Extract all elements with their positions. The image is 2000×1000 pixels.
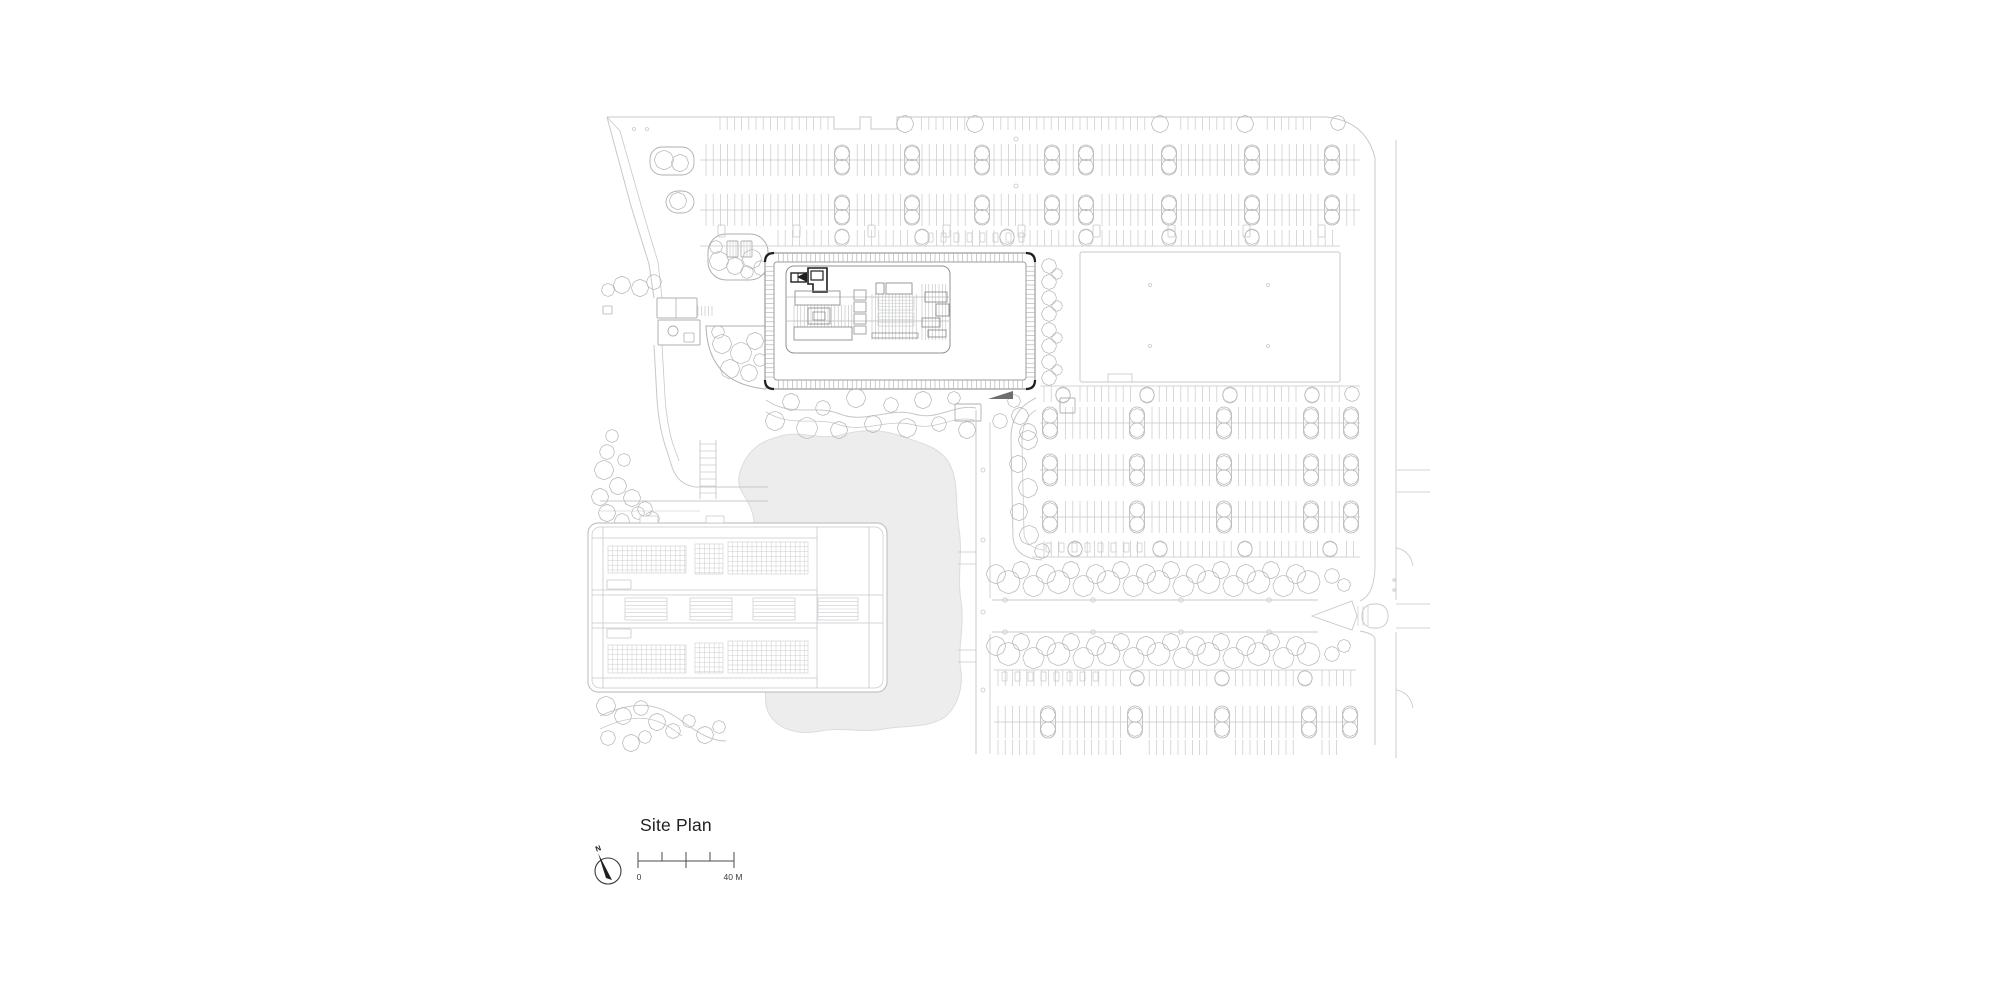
north-arrow-circle — [595, 858, 621, 884]
scale-label-zero: 0 — [637, 872, 642, 882]
site-plan-drawing: Site Plan N 0 40 M — [0, 0, 2000, 1000]
site-plan-sheet: Site Plan N 0 40 M — [0, 0, 2000, 1000]
plan-layers — [588, 116, 1430, 758]
scale-bar: 0 40 M — [637, 852, 743, 882]
north-label: N — [594, 843, 602, 853]
scale-label-max: 40 M — [724, 872, 743, 882]
north-needle-icon — [598, 853, 612, 880]
drawing-title: Site Plan — [640, 815, 712, 835]
north-arrow: N — [594, 843, 621, 884]
title-block: Site Plan N 0 40 M — [594, 815, 742, 884]
